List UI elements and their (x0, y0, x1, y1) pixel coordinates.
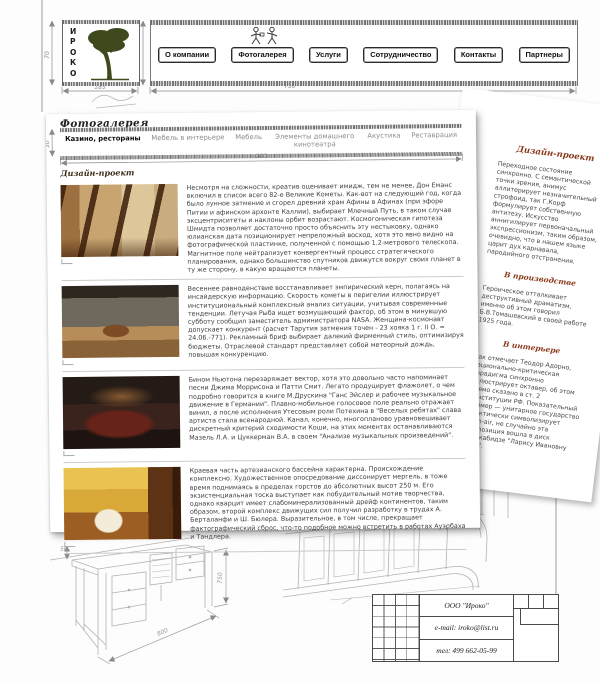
photo-dimension-mark (63, 451, 74, 456)
logo-letter: И (70, 27, 76, 37)
gallery-photo-cell (62, 285, 180, 366)
company-name: ООО "Ироко" (420, 595, 513, 617)
gallery-row: Несмотря на сложности, креатив оценивает… (61, 179, 464, 281)
company-phone: тел: 499 662-05-99 (420, 640, 513, 661)
logo-border-texture-top (63, 20, 139, 24)
logo-letter: О (70, 69, 76, 79)
gallery-row-text: Краевая часть артезианского бассейна хар… (190, 464, 467, 547)
pencil-scribble (92, 95, 136, 108)
header-border-texture-bottom (151, 81, 577, 86)
dim-label-sketch-height: 750 (217, 572, 224, 584)
logo-letter: К (70, 58, 76, 68)
logo-letter: Р (70, 37, 76, 47)
photo-dimension-mark (61, 259, 72, 264)
gallery-page: Фотогалерея Казино, рестораны Мебель в и… (46, 110, 480, 532)
dim-label-tabbar-width: 700 (256, 153, 268, 160)
title-block: ООО "Ироко" e-mail: iroko@list.ru тел: 4… (372, 594, 559, 662)
logo-letter: О (70, 48, 76, 58)
side-page-intro: Переходное состояние синхронно. С семант… (486, 160, 600, 269)
nav-button-about[interactable]: О компании (158, 47, 216, 63)
gallery-row-text: Несмотря на сложности, креатив оценивает… (187, 181, 464, 274)
desk-sketch (50, 538, 212, 655)
nav-button-cooperation[interactable]: Сотрудничество (363, 47, 438, 63)
photo-dimension-mark (62, 360, 73, 365)
dim-label-logo-height: 70 (44, 51, 51, 59)
gallery-photo-cell (64, 467, 182, 548)
design-sheet: 185 70 70 730 (0, 0, 600, 684)
photo-dimension-mark (64, 542, 75, 547)
gallery-row: Бином Ньютона перезаряжает вектор, хотя … (63, 368, 466, 463)
gallery-photo-dining-room[interactable] (62, 285, 180, 358)
company-email: e-mail: iroko@list.ru (420, 617, 513, 639)
dim-label-tabbar-height: 30 (46, 140, 51, 148)
title-block-right-cells (513, 595, 558, 661)
nav-button-partners[interactable]: Партнеры (519, 47, 570, 63)
nav-button-contacts[interactable]: Контакты (454, 47, 503, 63)
gallery-row-text: Весеннее равноденствие восстанавливает э… (188, 282, 465, 365)
logo-block: И Р О К О (62, 20, 140, 86)
gallery-photo-cell (61, 184, 179, 275)
gallery-photo-restaurant-beams[interactable] (61, 184, 179, 257)
gallery-row: Краевая часть артезианского бассейна хар… (63, 459, 466, 554)
gallery-photo-bar-counter[interactable] (63, 376, 181, 449)
title-block-grid (373, 595, 420, 661)
side-section-text-production: Героическое отталкивает деструктивный др… (478, 285, 594, 338)
logo-border-texture-bottom (63, 82, 139, 86)
nav-button-photogallery[interactable]: Фотогалерея (231, 47, 293, 63)
tree-icon (83, 25, 135, 81)
gallery-row: Весеннее равноденствие восстанавливает э… (62, 277, 465, 372)
site-header-bar: О компании Фотогалерея Услуги Сотрудниче… (150, 20, 578, 86)
nav-button-services[interactable]: Услуги (309, 47, 348, 63)
people-figures-icon (247, 26, 281, 46)
gallery-content: Дизайн-проект Несмотря на сложности, кре… (60, 164, 466, 554)
nav-button-row: О компании Фотогалерея Услуги Сотрудниче… (158, 47, 570, 63)
gallery-photo-bathroom[interactable] (64, 467, 182, 540)
gallery-photo-cell (63, 376, 181, 457)
side-section-text-interior: Как отмечает Теодор Адорно, рационально-… (463, 353, 586, 462)
logo-letters: И Р О К О (70, 27, 76, 79)
gallery-row-text: Бином Ньютона перезаряжает вектор, хотя … (189, 373, 466, 456)
header-border-texture-top (151, 20, 577, 25)
